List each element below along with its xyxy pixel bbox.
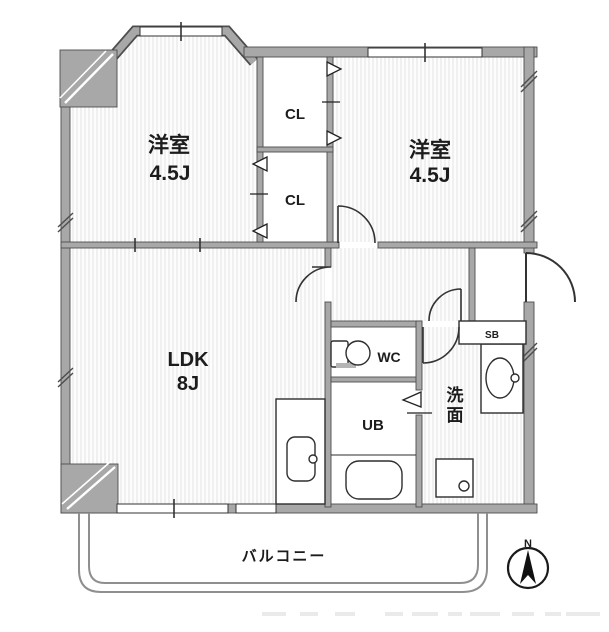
- wall-left: [61, 51, 70, 513]
- compass-icon: N: [508, 538, 548, 588]
- floorplan-page: N 洋室 4.5J 洋室 4.5J LDK 8J CL CL WC UB 洗面 …: [0, 0, 609, 632]
- toilet-icon: [331, 341, 370, 368]
- unit-bath-label: UB: [362, 417, 384, 434]
- wall-closet-divider: [257, 147, 333, 152]
- door-arc-entrance: [526, 253, 575, 302]
- wall-mid-horizontal-right: [378, 242, 537, 248]
- wall-water-right-lower: [416, 415, 422, 507]
- ldk-size-label: 8J: [177, 373, 199, 395]
- wc-label: WC: [377, 349, 400, 365]
- wall-ldk-right-lower: [325, 302, 331, 507]
- wall-entrance-left: [469, 248, 475, 321]
- kitchen-counter: [276, 399, 325, 504]
- vanity-counter: [481, 344, 523, 413]
- entrance-floor: [475, 248, 524, 321]
- watermark-smudge: [262, 612, 600, 616]
- corner-pillar-bottom-left: [61, 462, 118, 513]
- corner-pillar-top-left: [60, 50, 117, 107]
- hallway-floor: [331, 248, 469, 321]
- wall-ldk-right-upper: [325, 248, 331, 267]
- washroom-label: 洗面: [444, 385, 464, 426]
- wall-water-right-upper: [416, 321, 422, 390]
- wall-wc-top: [331, 321, 422, 327]
- bedroom-right-size-label: 4.5J: [410, 164, 451, 187]
- bedroom-left-name-label: 洋室: [148, 133, 190, 157]
- wall-wc-ub-divider: [331, 377, 420, 382]
- floorplan-svg: N 洋室 4.5J 洋室 4.5J LDK 8J CL CL WC UB 洗面 …: [0, 0, 609, 632]
- balcony-label: バルコニー: [242, 548, 327, 565]
- closet-top-floor: [263, 57, 327, 147]
- north-arrow-icon: [520, 550, 536, 584]
- shoe-box-label: SB: [485, 330, 499, 341]
- compass-north-label: N: [524, 538, 532, 550]
- window-balcony-side: [236, 504, 276, 513]
- washing-machine-icon: [436, 459, 473, 497]
- closet-top-label: CL: [285, 106, 305, 123]
- kitchen-sink-icon: [287, 437, 317, 481]
- bedroom-right-name-label: 洋室: [409, 138, 451, 162]
- ldk-name-label: LDK: [167, 349, 209, 371]
- bedroom-left-size-label: 4.5J: [150, 162, 191, 185]
- closet-bottom-label: CL: [285, 192, 305, 209]
